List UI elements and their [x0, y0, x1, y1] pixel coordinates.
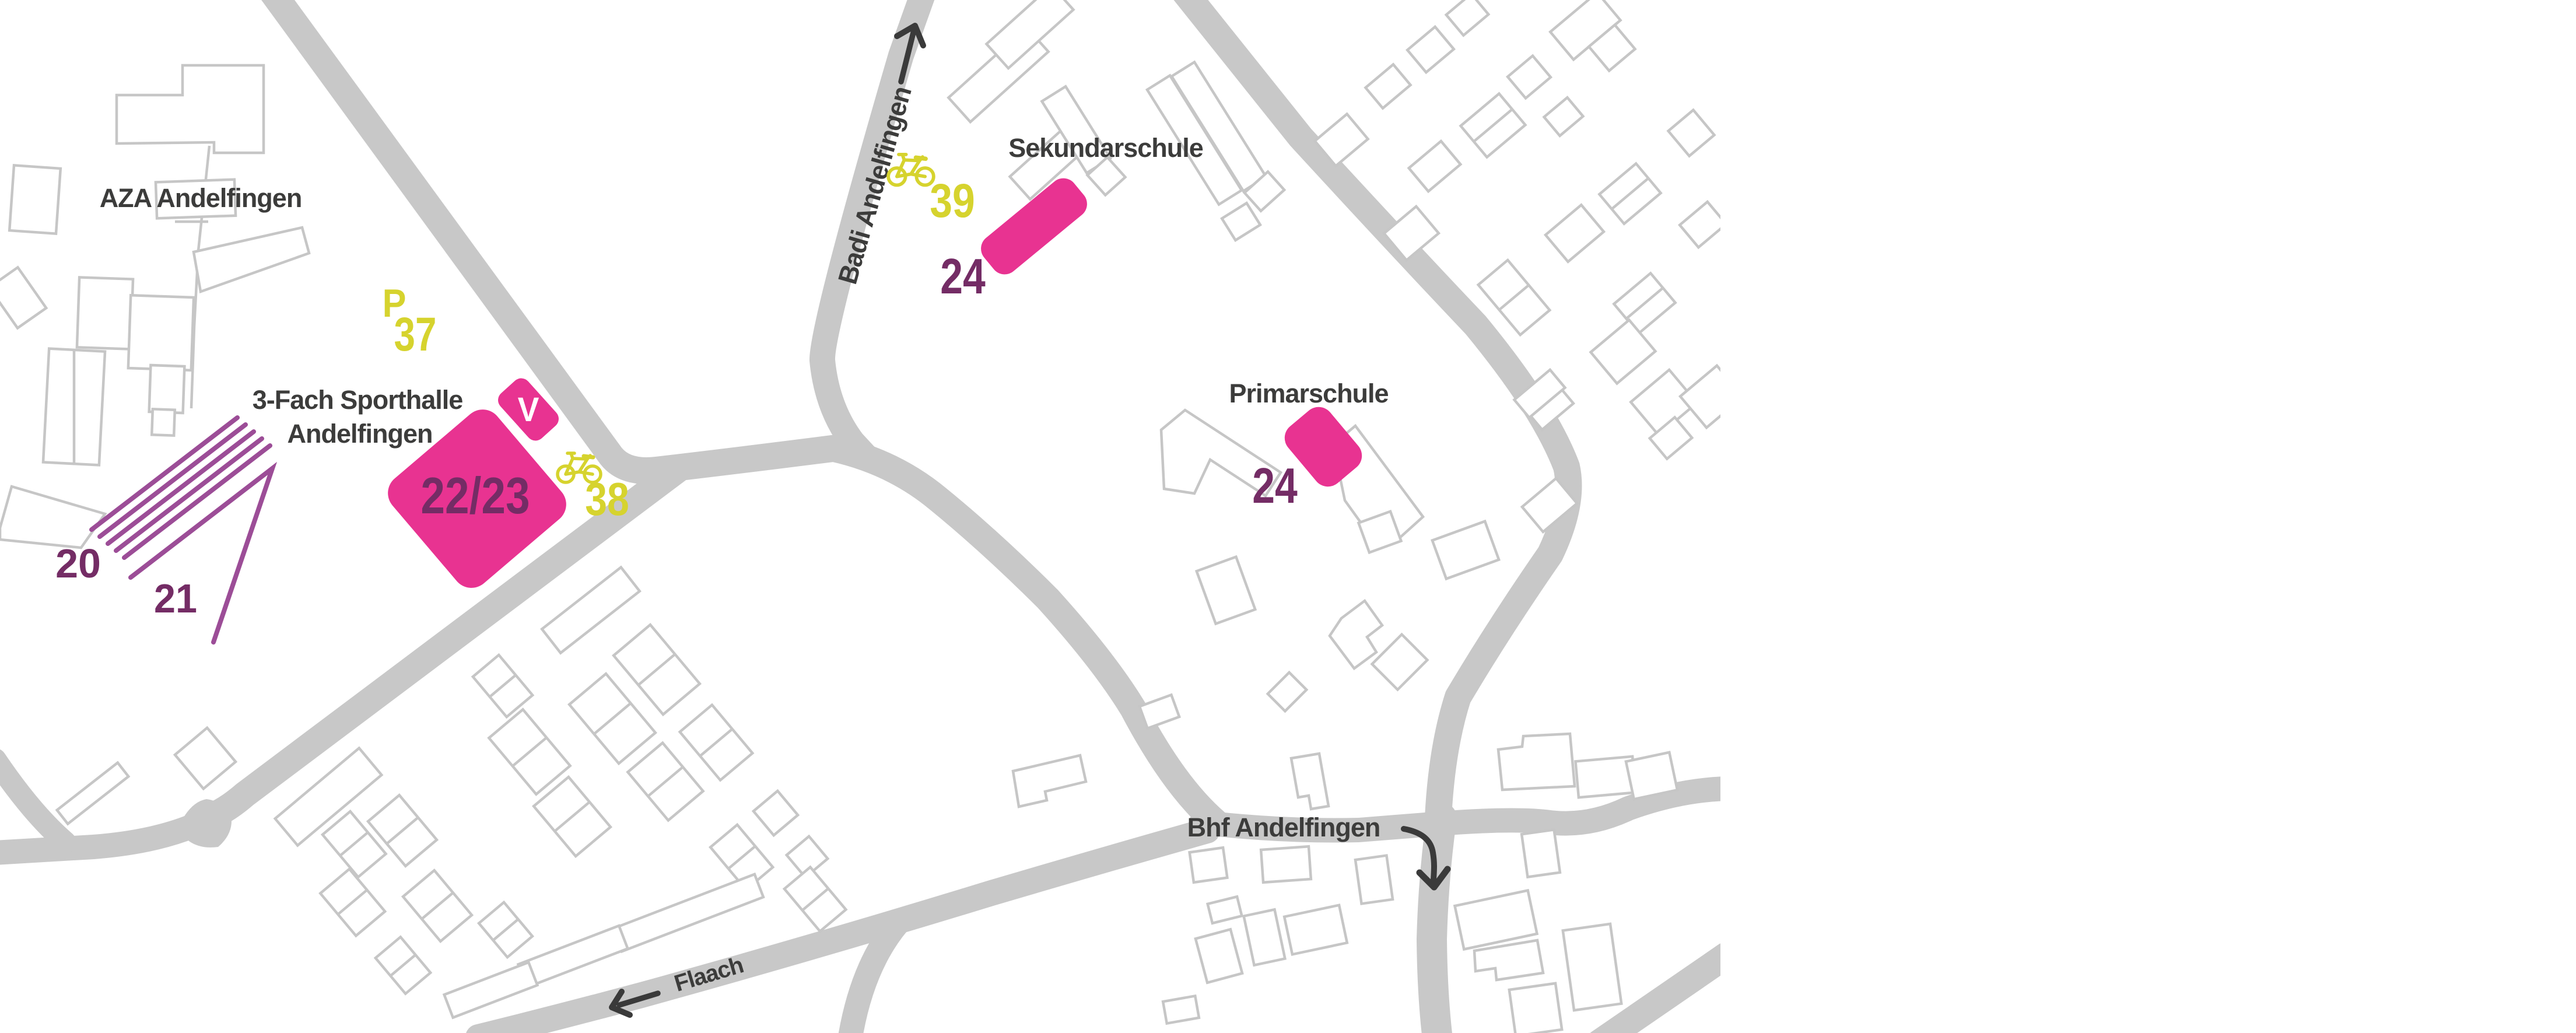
svg-text:Bhf Andelfingen: Bhf Andelfingen	[1187, 813, 1380, 842]
svg-text:39: 39	[930, 174, 975, 228]
svg-text:Primarschule: Primarschule	[1229, 379, 1388, 408]
svg-text:Sekundarschule: Sekundarschule	[1008, 133, 1203, 163]
svg-text:20: 20	[55, 541, 101, 586]
svg-text:22/23: 22/23	[420, 467, 530, 524]
svg-text:Andelfingen: Andelfingen	[288, 419, 433, 449]
svg-text:AZA Andelfingen: AZA Andelfingen	[100, 183, 302, 213]
svg-text:3-Fach Sporthalle: 3-Fach Sporthalle	[253, 385, 463, 415]
svg-text:24: 24	[1252, 459, 1298, 514]
svg-text:V: V	[518, 391, 539, 429]
svg-text:24: 24	[940, 250, 986, 304]
svg-text:21: 21	[154, 576, 197, 621]
svg-text:37: 37	[394, 307, 437, 361]
